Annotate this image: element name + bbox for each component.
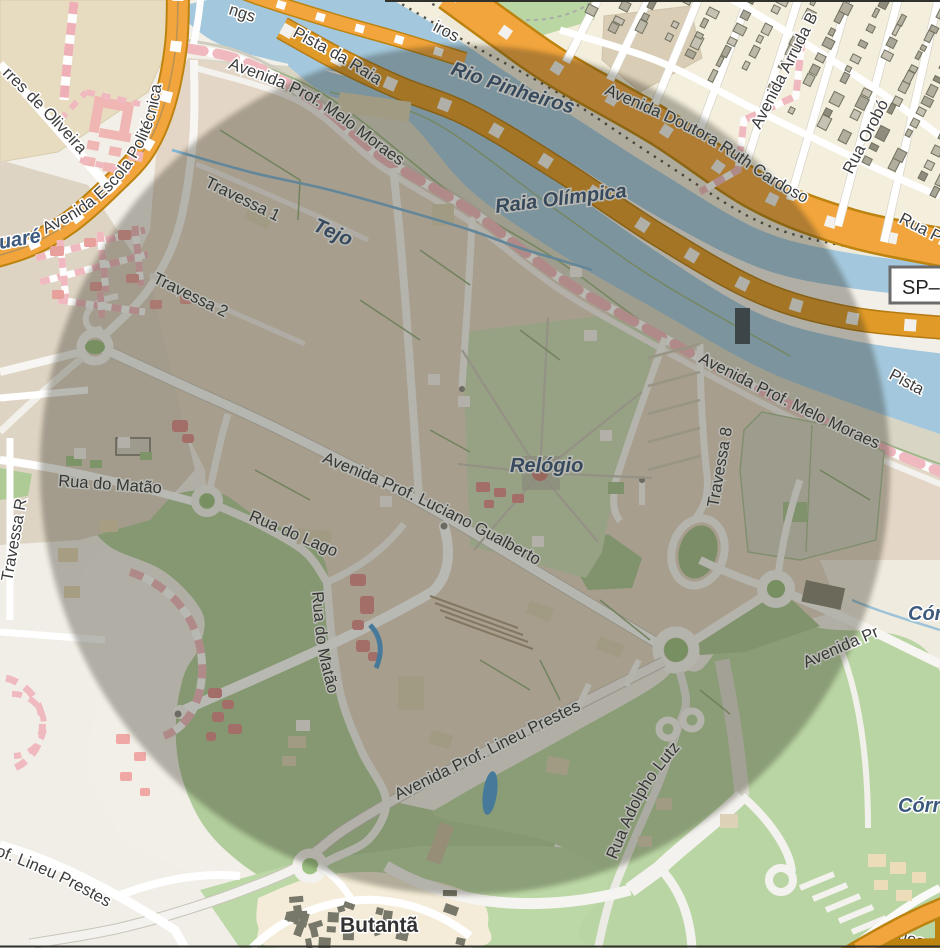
svg-text:Córr: Córr xyxy=(908,603,940,625)
svg-text:Butantã: Butantã xyxy=(340,914,418,937)
svg-text:SP–0: SP–0 xyxy=(902,277,940,299)
svg-text:Córreg: Córreg xyxy=(898,795,940,817)
